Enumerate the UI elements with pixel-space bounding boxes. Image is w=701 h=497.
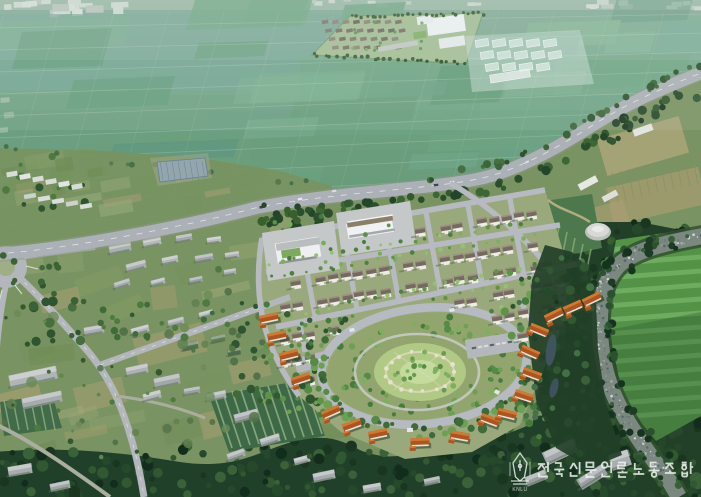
svg-text:KNLU: KNLU [512,487,527,493]
